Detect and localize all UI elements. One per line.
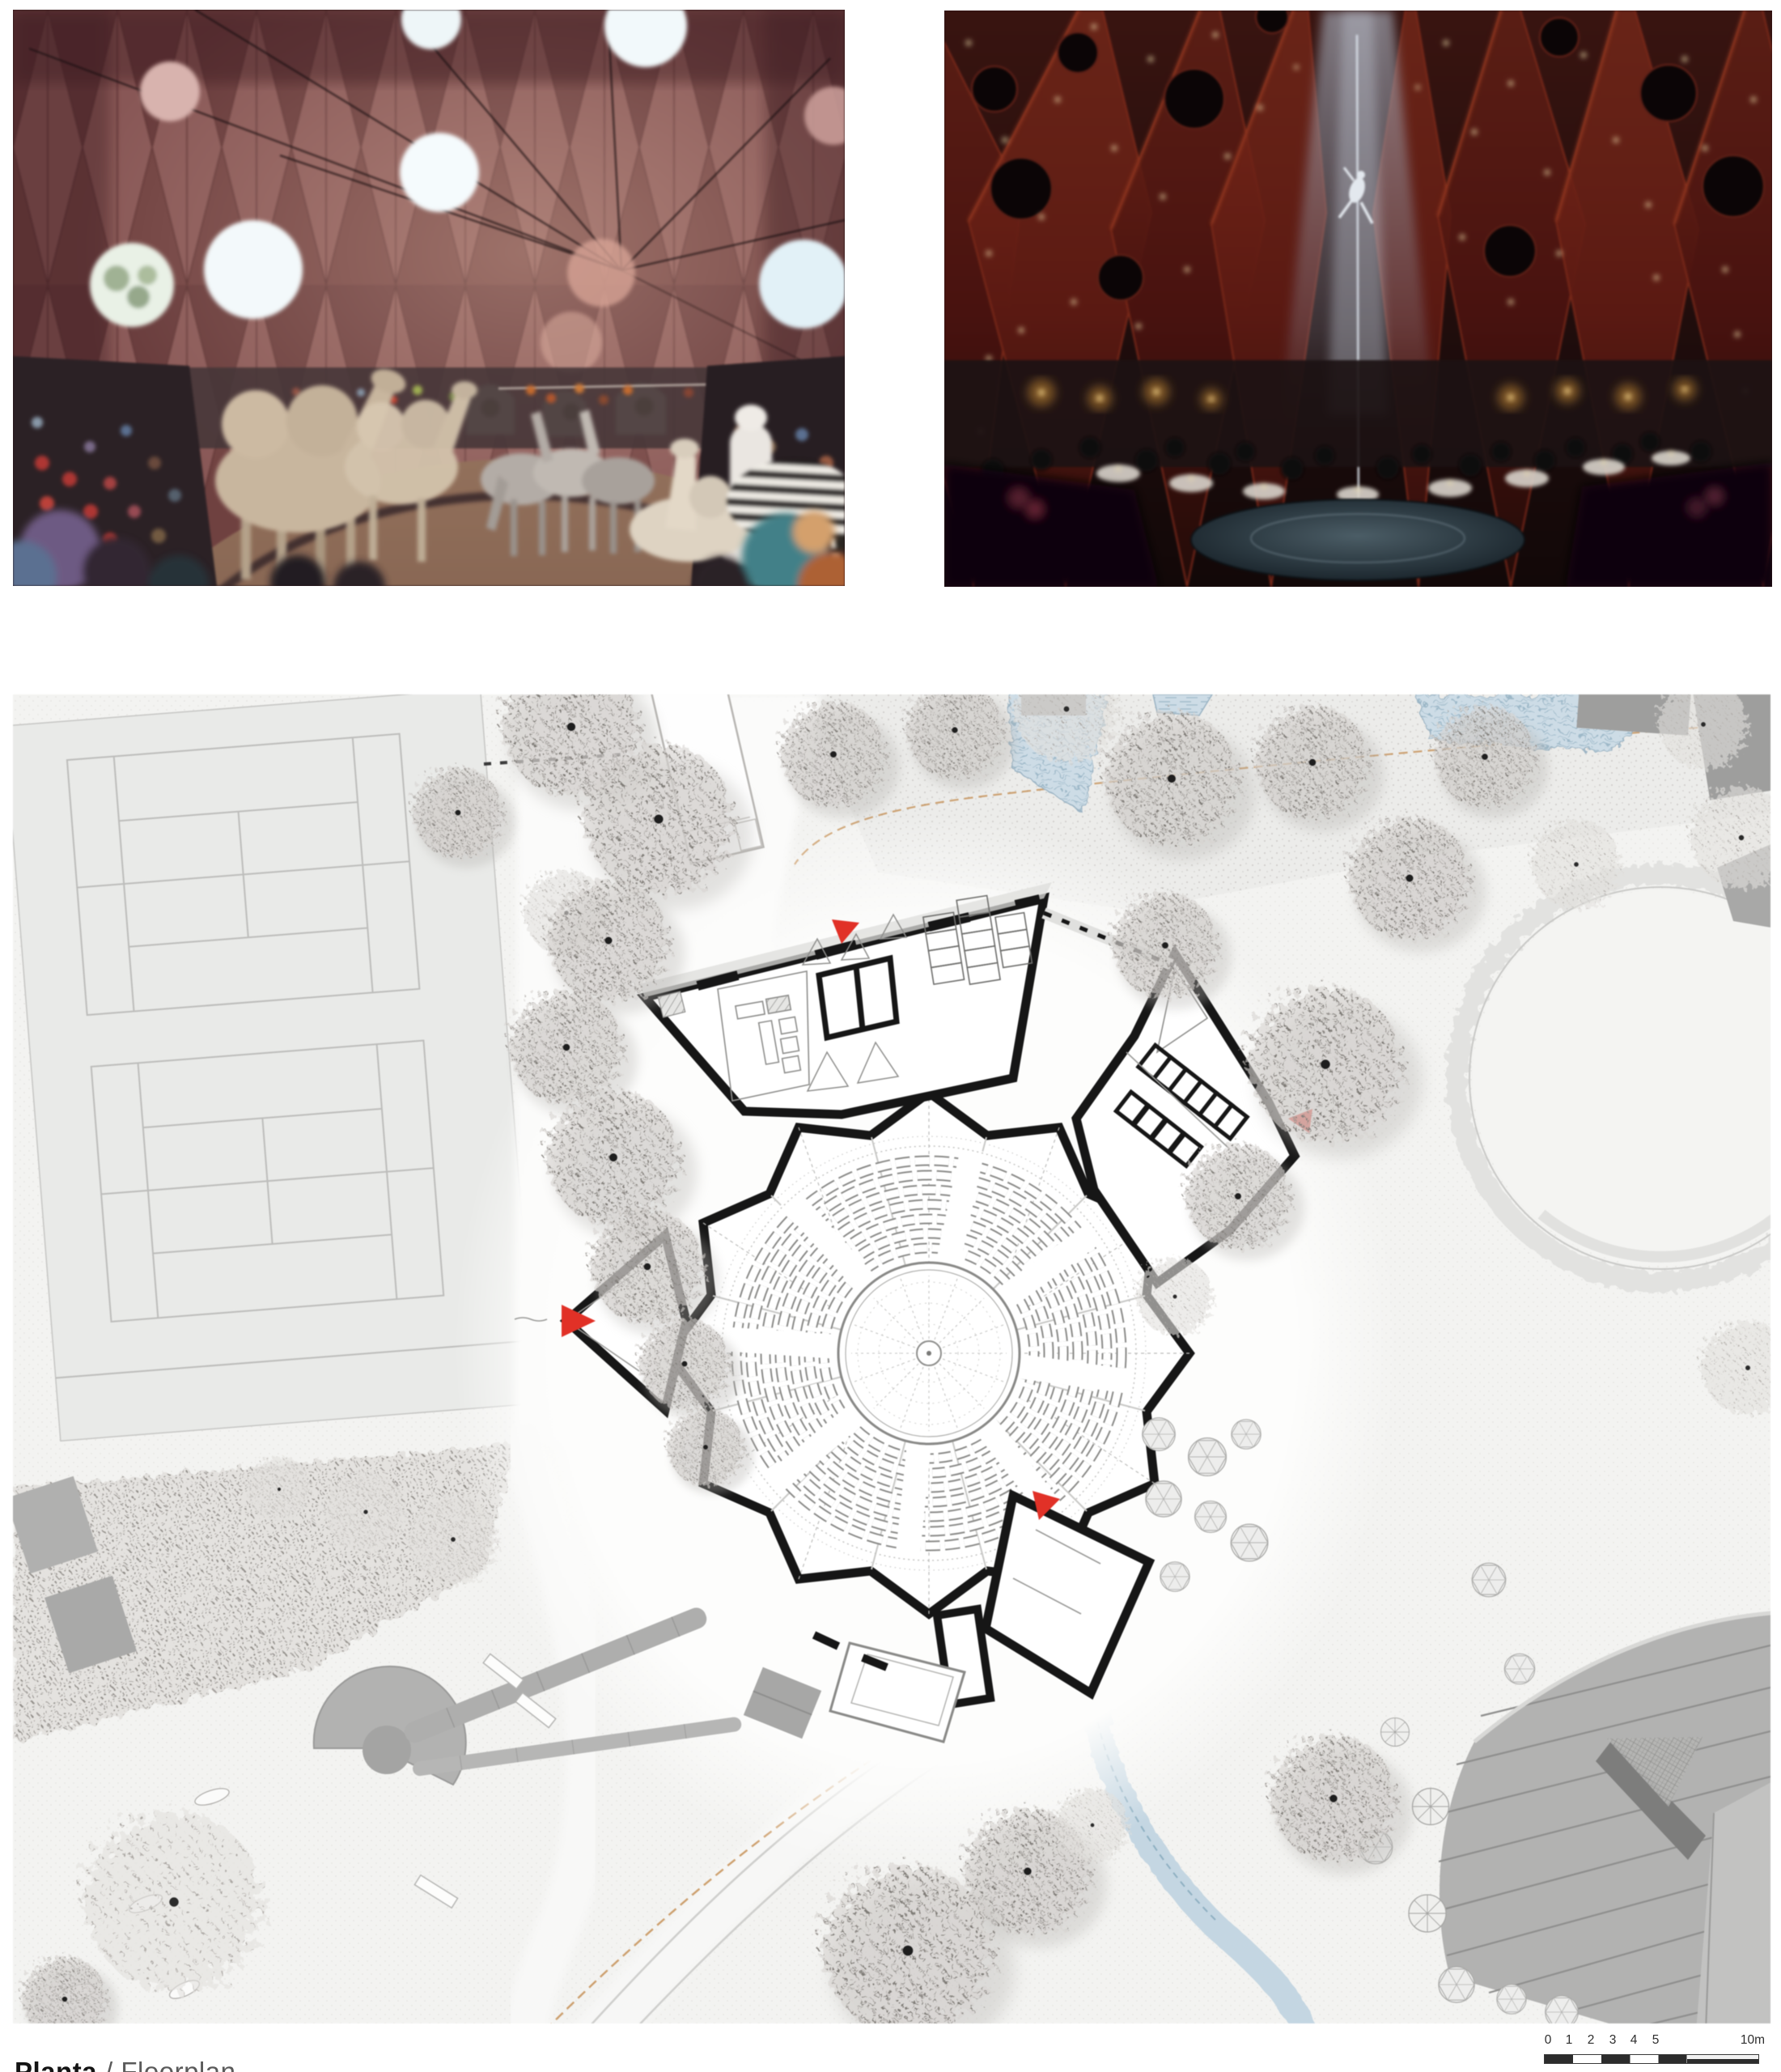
caption-title-es: Planta	[15, 2057, 97, 2072]
circular-plaza	[1457, 874, 1770, 1282]
scale-tick-4: 4	[1630, 2033, 1638, 2048]
scale-ticks: 0 1 2 3 4 5 10m	[1544, 2033, 1770, 2049]
scale-tick-1: 1	[1566, 2033, 1573, 2048]
scale-bar: 0 1 2 3 4 5 10m	[1544, 2033, 1770, 2064]
site-plan	[13, 694, 1770, 2023]
scale-end-label: 10m	[1741, 2033, 1765, 2048]
site-plan-drawing	[13, 694, 1770, 2023]
scale-tick-3: 3	[1609, 2033, 1617, 2048]
caption: Planta/ Floorplan	[15, 2057, 235, 2072]
presentation-board: Planta/ Floorplan 0 1 2 3 4 5 10m	[0, 0, 1781, 2072]
skylight-trees-view	[90, 243, 174, 327]
scale-tick-5: 5	[1652, 2033, 1660, 2048]
photo-left-render	[13, 10, 845, 586]
arena	[838, 1263, 1020, 1444]
scale-tick-0: 0	[1545, 2033, 1552, 2048]
photo-circus-interior-performance	[944, 11, 1772, 587]
photo-circus-interior-animals	[13, 10, 845, 586]
caption-title-en: / Floorplan	[105, 2057, 235, 2072]
scale-tick-2: 2	[1588, 2033, 1595, 2048]
scale-bar-graphic	[1544, 2054, 1759, 2064]
round-stage	[1191, 499, 1524, 580]
photo-right-render	[944, 11, 1772, 587]
